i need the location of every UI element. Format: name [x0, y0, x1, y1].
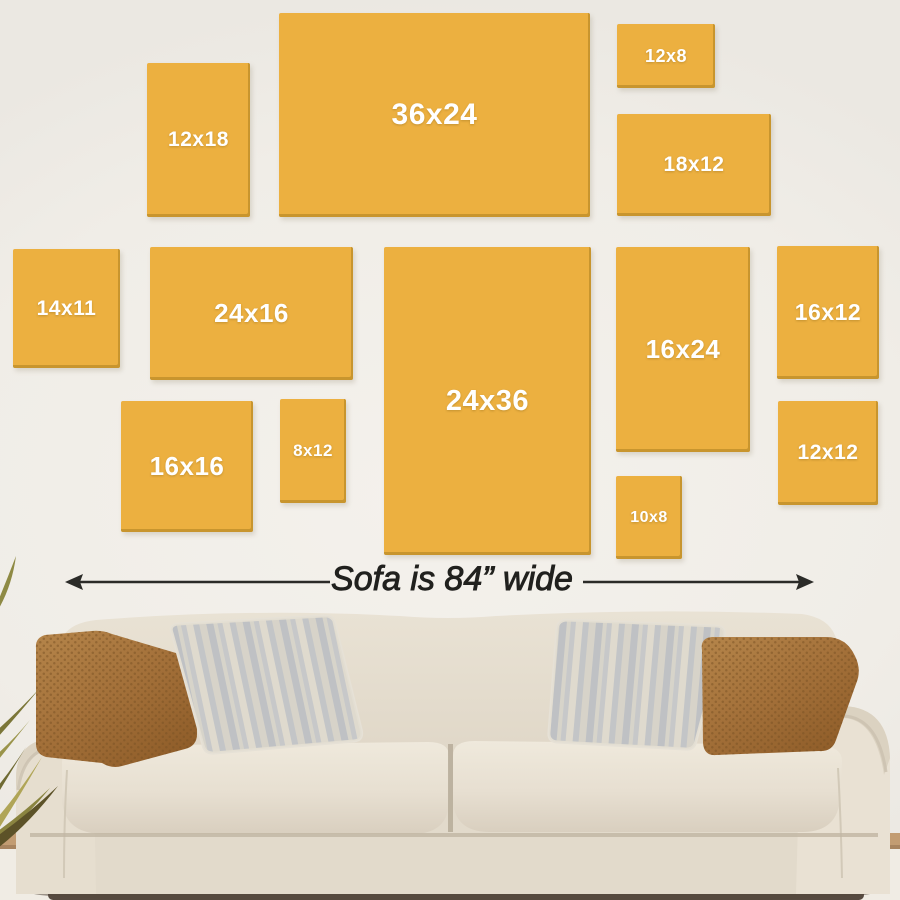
svg-text:Sofa is 84” wide: Sofa is 84” wide	[331, 560, 573, 598]
